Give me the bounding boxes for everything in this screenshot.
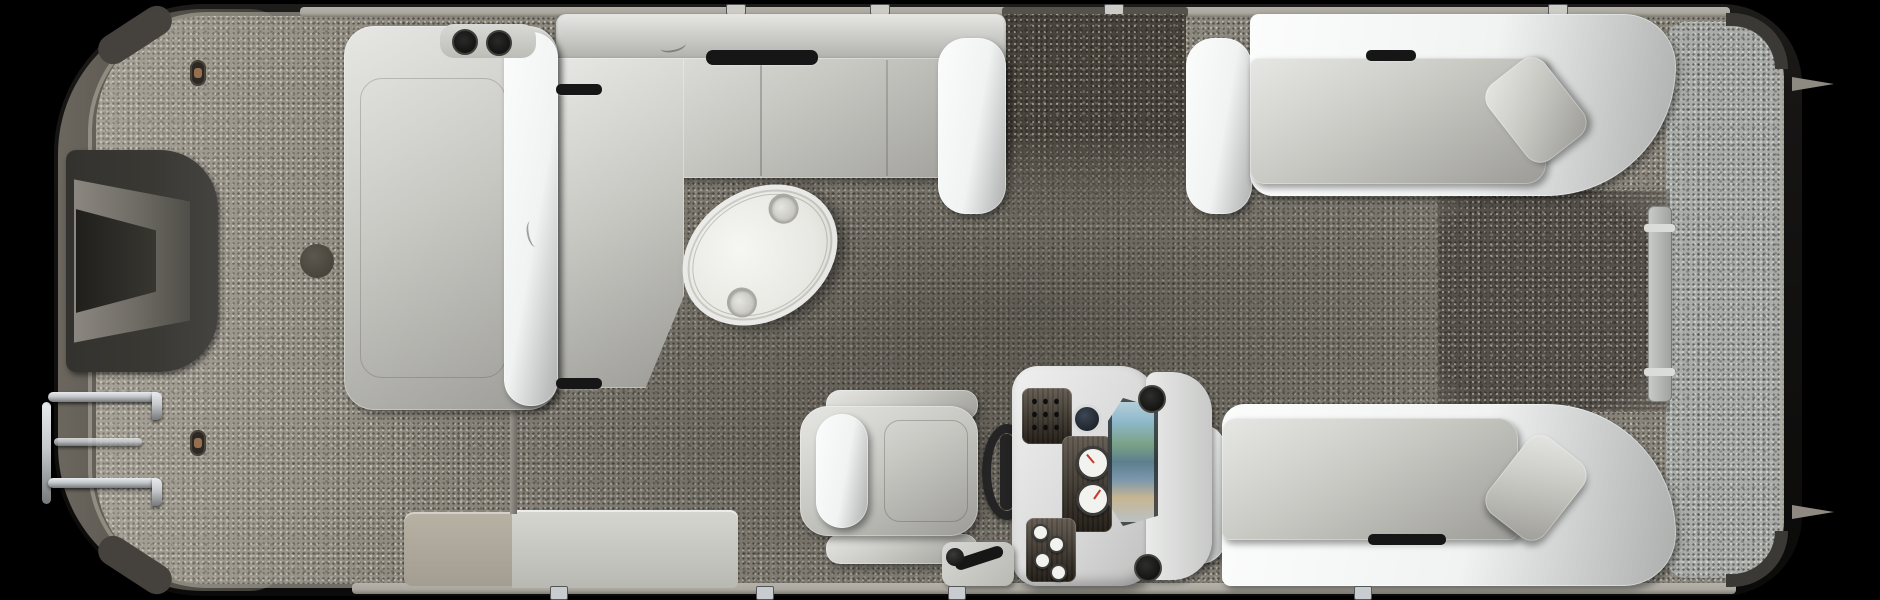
helm-console — [940, 360, 1230, 592]
aft-port-armrest — [1186, 38, 1252, 214]
aft-starboard-bench-seat — [1222, 418, 1518, 540]
seat-seam — [760, 60, 762, 176]
console-speaker-bottom — [1134, 554, 1162, 582]
bench-cupholder-recess — [1368, 534, 1446, 545]
mini-gauge — [1032, 524, 1049, 541]
stern-corner-bracket-bottom — [1726, 531, 1788, 587]
gauge-needle — [1093, 489, 1101, 499]
rpm-gauge — [1076, 482, 1110, 516]
mini-gauge — [1048, 536, 1065, 553]
console-speaker-top — [1138, 385, 1166, 413]
pontoon-floorplan-render — [0, 0, 1880, 600]
gauge-needle — [1086, 454, 1095, 464]
mini-gauge — [1034, 552, 1051, 569]
grab-handle — [556, 378, 602, 389]
bow-lounger-backrest — [504, 32, 558, 406]
port-bench-corner-chaise — [556, 58, 684, 388]
bench-cupholder-recess — [706, 50, 818, 65]
seat-seam — [886, 60, 888, 176]
gate-step-box-left — [404, 512, 512, 586]
port-gate-opening-carpet — [1004, 14, 1186, 226]
lounger-seam — [360, 78, 506, 378]
stern-gate-hinge — [1644, 224, 1675, 232]
ladder-hook-top — [152, 392, 162, 420]
stern-cleat-top — [1792, 77, 1834, 91]
stern-corner-bracket-top — [1726, 13, 1788, 69]
deck-latch-top-pin — [194, 68, 202, 78]
stern-cleat-bottom — [1792, 505, 1834, 519]
cupholder — [486, 30, 512, 56]
rail-latch — [756, 586, 774, 600]
ladder-tube-bottom — [48, 478, 160, 488]
boarding-ladder — [40, 386, 210, 526]
ladder-side-rail — [42, 402, 51, 504]
table-base-mount — [300, 244, 334, 278]
mini-gauge — [1050, 564, 1067, 581]
speed-gauge — [1076, 446, 1110, 480]
ladder-rung — [54, 438, 142, 446]
rail-latch — [948, 586, 966, 600]
port-bench-armrest — [938, 38, 1006, 214]
windshield — [1108, 398, 1158, 526]
throttle-knob — [946, 548, 964, 566]
rail-latch — [550, 586, 568, 600]
compass-gauge — [1072, 404, 1102, 434]
rail-latch — [1354, 586, 1372, 600]
ladder-hook-bottom — [152, 478, 162, 506]
stern-gate-hinge — [1644, 368, 1675, 376]
grab-handle — [1366, 50, 1416, 61]
keypad-buttons — [1029, 395, 1065, 437]
grab-handle — [556, 84, 602, 95]
stern-walkway-carpet — [1438, 190, 1670, 412]
chair-backrest — [816, 414, 868, 528]
gate-post — [510, 400, 517, 514]
cupholder — [452, 29, 478, 55]
gate-step-box-right — [512, 510, 738, 588]
ladder-tube-top — [48, 392, 160, 402]
